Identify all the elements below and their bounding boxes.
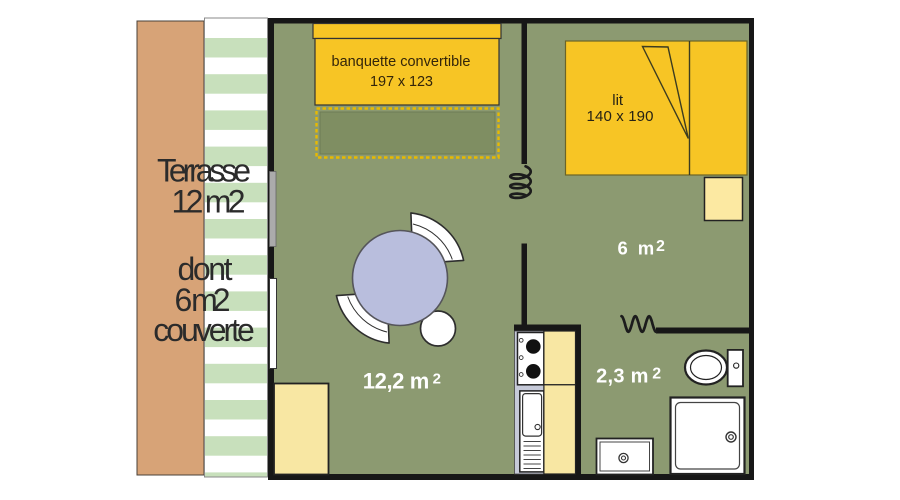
svg-text:140 x 190: 140 x 190 (587, 108, 654, 125)
svg-text:2: 2 (433, 371, 441, 388)
svg-text:2: 2 (656, 238, 665, 255)
svg-text:couverte: couverte (153, 312, 255, 348)
svg-text:2,3 m: 2,3 m (596, 366, 649, 388)
svg-text:12 m2: 12 m2 (172, 184, 246, 220)
svg-text:6 m: 6 m (618, 238, 657, 259)
svg-text:12,2 m: 12,2 m (363, 369, 429, 394)
svg-text:2: 2 (652, 365, 661, 382)
svg-text:197 x 123: 197 x 123 (370, 74, 433, 90)
svg-text:lit: lit (612, 92, 624, 109)
svg-text:banquette convertible: banquette convertible (332, 54, 471, 70)
